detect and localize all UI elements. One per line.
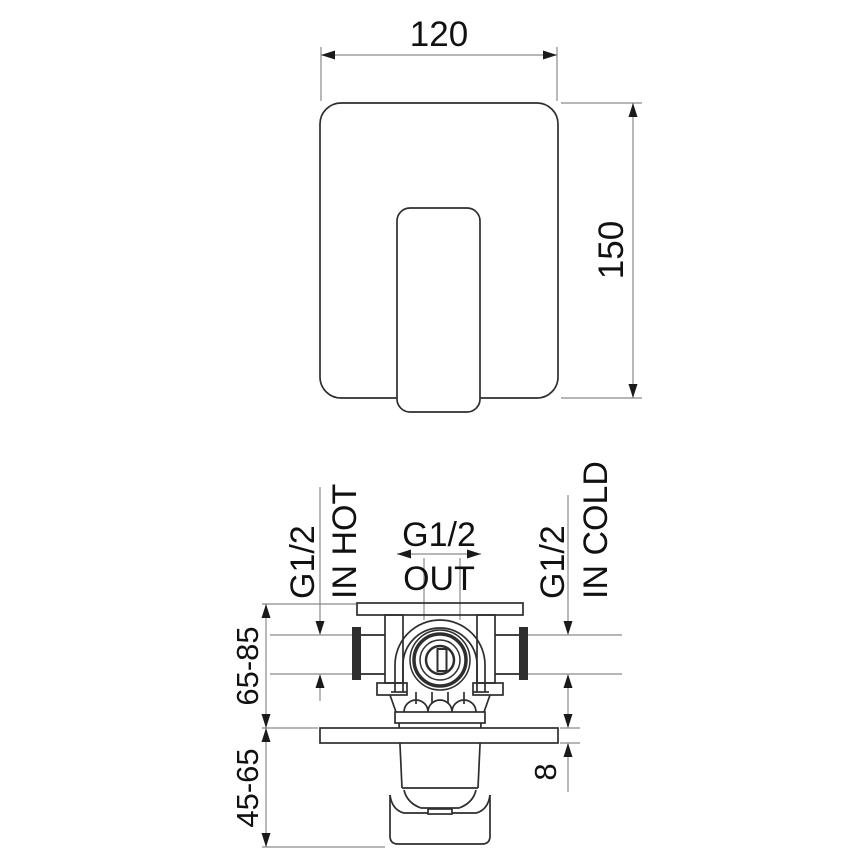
valve-body-arch-outer (395, 620, 485, 692)
cold-thread-label: G1/2 (534, 525, 572, 599)
front-view (320, 103, 558, 412)
cartridge-seat-ring (410, 630, 470, 690)
dim-trim-depth-label: 45-65 (230, 748, 265, 827)
arrow-thickness-bottom (564, 743, 573, 757)
arrow-width-left (321, 51, 335, 60)
arrow-height-bottom (629, 384, 638, 398)
section-wall-plate (320, 728, 558, 743)
locknut-band (395, 712, 485, 723)
technical-drawing-canvas: 120 150 G1/2 IN HOT G1/2 OUT G1/2 IN COL… (0, 0, 868, 868)
arrow-hot-up (316, 674, 325, 688)
bracket-right (477, 615, 495, 683)
cold-port-flange (519, 627, 528, 680)
cartridge-outer-ring (414, 634, 466, 686)
arrow-cold-down (564, 621, 573, 635)
dim-plate-thickness-label: 8 (528, 763, 563, 780)
handle-cup-outer (390, 795, 490, 844)
arrow-thickness-top (564, 714, 573, 728)
bracket-left (385, 615, 403, 683)
cold-name-label: IN COLD (577, 461, 615, 599)
arrow-height-top (629, 103, 638, 117)
part-outlines (320, 103, 558, 844)
arrow-trim-top (262, 728, 271, 742)
arrow-depth-top (262, 604, 271, 618)
hot-port-flange (352, 627, 361, 680)
cartridge-spindle-slot (438, 649, 447, 671)
cap-dome (404, 790, 476, 808)
faucet-installation-drawing: 120 150 G1/2 IN HOT G1/2 OUT G1/2 IN COL… (0, 0, 868, 868)
front-handle-lever (397, 208, 480, 412)
out-thread-label: G1/2 (402, 516, 476, 554)
dim-width-label: 120 (410, 15, 468, 54)
cartridge-spindle (426, 646, 454, 674)
skirt-side-left (390, 695, 396, 712)
arrow-width-right (543, 51, 557, 60)
hot-thread-label: G1/2 (284, 525, 322, 599)
arrow-cold-up (564, 674, 573, 688)
skirt-side-right (484, 695, 490, 712)
arrow-trim-bottom (262, 833, 271, 847)
hot-name-label: IN HOT (326, 484, 364, 599)
cap-tab (428, 809, 452, 814)
out-name-label: OUT (403, 560, 475, 598)
dim-height-label: 150 (592, 221, 631, 279)
arrow-hot-down (316, 621, 325, 635)
dim-mounting-depth-label: 65-85 (230, 626, 265, 705)
arrow-depth-bottom (262, 714, 271, 728)
valve-mounting-flange (357, 603, 523, 615)
